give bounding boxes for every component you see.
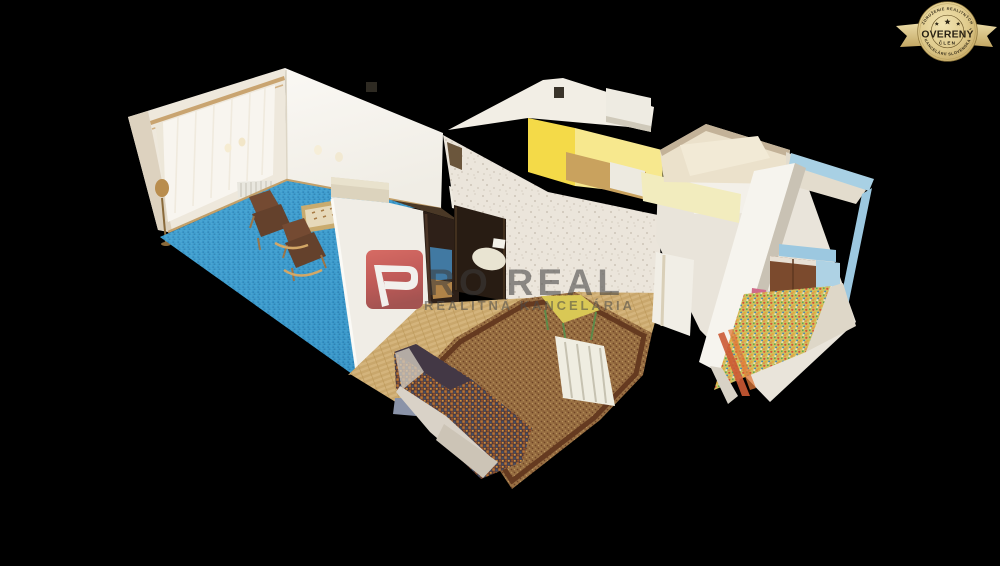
svg-text:REALITNÁ KANCELÁRIA: REALITNÁ KANCELÁRIA	[424, 298, 634, 313]
svg-text:RO REAL: RO REAL	[428, 262, 624, 303]
svg-text:OVERENÝ: OVERENÝ	[921, 27, 973, 40]
svg-text:ČLEN: ČLEN	[939, 39, 956, 45]
